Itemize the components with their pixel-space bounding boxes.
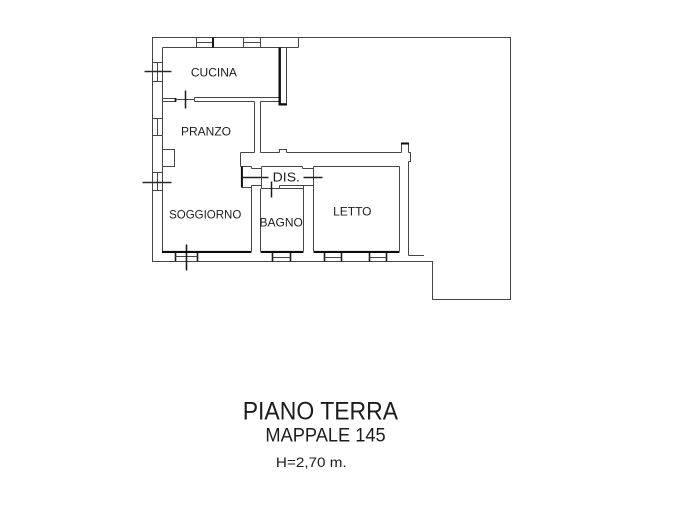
svg-text:SOGGIORNO: SOGGIORNO (169, 208, 241, 221)
svg-text:MAPPALE 145: MAPPALE 145 (265, 424, 385, 445)
svg-text:DIS.: DIS. (273, 170, 300, 184)
svg-text:H=2,70 m.: H=2,70 m. (276, 456, 347, 471)
svg-text:LETTO: LETTO (333, 205, 371, 219)
svg-text:PRANZO: PRANZO (181, 125, 231, 139)
svg-text:BAGNO: BAGNO (260, 216, 303, 230)
svg-text:PIANO TERRA: PIANO TERRA (243, 398, 399, 426)
svg-text:CUCINA: CUCINA (191, 65, 237, 79)
